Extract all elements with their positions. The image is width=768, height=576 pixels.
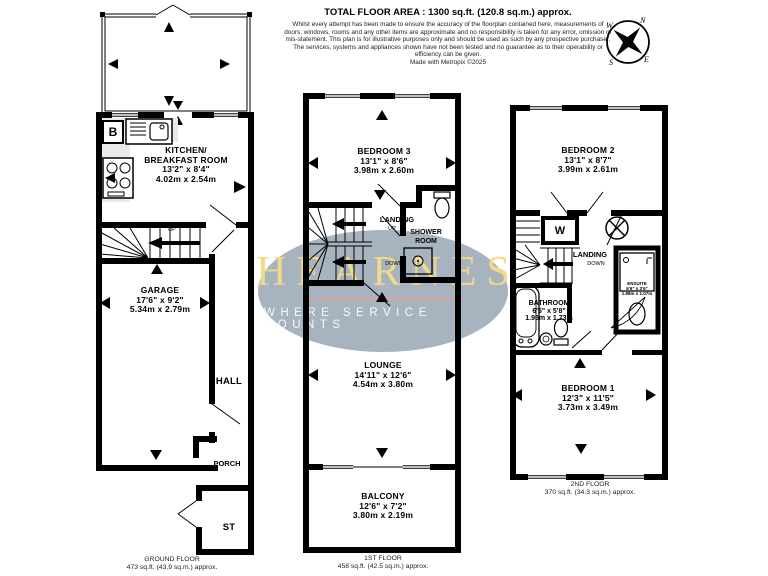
balcony-label: BALCONY 12'6" x 7'2" 3.80m x 2.19m bbox=[353, 492, 413, 521]
second-floor-caption: 2ND FLOOR 370 sq.ft. (34.3 sq.m.) approx… bbox=[545, 481, 636, 497]
sink-icon bbox=[126, 119, 172, 144]
bedroom2-label: BEDROOM 2 13'1" x 8'7" 3.99m x 2.61m bbox=[558, 146, 618, 175]
kitchen-label: KITCHEN/ BREAKFAST ROOM 13'2" x 8'4" 4.0… bbox=[144, 146, 228, 184]
metropix-credit: Made with Metropix ©2025 bbox=[283, 59, 613, 66]
garage-label: GARAGE 17'6" x 9'2" 5.34m x 2.79m bbox=[130, 286, 190, 315]
stairs-down-icon bbox=[512, 221, 580, 283]
total-floor-area-title: TOTAL FLOOR AREA : 1300 sq.ft. (120.8 sq… bbox=[283, 7, 613, 18]
compass-star-icon bbox=[613, 27, 642, 56]
floorplan-page: TOTAL FLOOR AREA : 1300 sq.ft. (120.8 sq… bbox=[0, 0, 768, 576]
shower-tray-icon bbox=[404, 248, 432, 274]
porch-label: PORCH bbox=[213, 460, 240, 469]
ground-floor-plan bbox=[88, 4, 266, 556]
toilet-icon bbox=[434, 192, 450, 218]
bathroom-label: BATHROOM 6'5" x 5'8" 1.95m x 1.73m bbox=[525, 300, 572, 323]
balcony-doors-windows bbox=[323, 464, 430, 470]
shower-room-label: SHOWER ROOM bbox=[410, 229, 442, 246]
up-label-ground: UP bbox=[168, 227, 176, 233]
store-label: ST bbox=[223, 523, 236, 533]
stairs-updown-icon bbox=[309, 208, 372, 280]
compass-e: E bbox=[643, 55, 649, 64]
hall-porch-walls bbox=[178, 228, 254, 552]
bedroom1-label: BEDROOM 1 12'3" x 11'5" 3.73m x 3.49m bbox=[558, 384, 618, 413]
garden-dimension-arrows bbox=[108, 22, 230, 106]
extractor-fan-icon bbox=[606, 217, 628, 239]
bedroom3-label: BEDROOM 3 13'1" x 8'6" 3.98m x 2.60m bbox=[354, 147, 414, 176]
landing-label-1f: LANDING bbox=[380, 216, 414, 225]
disclaimer-text: Whilst every attempt has been made to en… bbox=[283, 21, 613, 59]
compass-rose-icon: N W S E bbox=[599, 9, 657, 71]
bedroom2-wall-doors bbox=[510, 192, 665, 216]
stairs-up-icon bbox=[96, 228, 212, 264]
hob-icon bbox=[103, 158, 133, 198]
garden-fence bbox=[100, 5, 252, 114]
up-label-1f: UP bbox=[388, 226, 396, 232]
wardrobe-label: W bbox=[555, 225, 565, 237]
ensuite-walls bbox=[607, 210, 658, 332]
compass-n: N bbox=[639, 16, 646, 25]
landing-label-2f: LANDING bbox=[573, 251, 607, 260]
ensuite-label: ENSUITE 6'6" x 3'6" 1.98m x 1.07m bbox=[622, 281, 653, 296]
first-floor-caption: 1ST FLOOR 458 sq.ft. (42.5 sq.m.) approx… bbox=[338, 555, 429, 571]
ground-floor-caption: GROUND FLOOR 473 sq.ft. (43.9 sq.m.) app… bbox=[127, 556, 218, 572]
lounge-label: LOUNGE 14'11" x 12'6" 4.54m x 3.80m bbox=[353, 361, 413, 390]
down-label-1f: DOWN bbox=[385, 261, 402, 267]
boiler-label: B bbox=[109, 125, 118, 139]
hall-label: HALL bbox=[216, 377, 242, 387]
basin-icon bbox=[629, 303, 645, 325]
sink-icon bbox=[540, 333, 552, 345]
compass-s: S bbox=[609, 58, 613, 67]
down-label-2f: DOWN bbox=[587, 261, 604, 267]
toilet-icon bbox=[554, 319, 568, 345]
